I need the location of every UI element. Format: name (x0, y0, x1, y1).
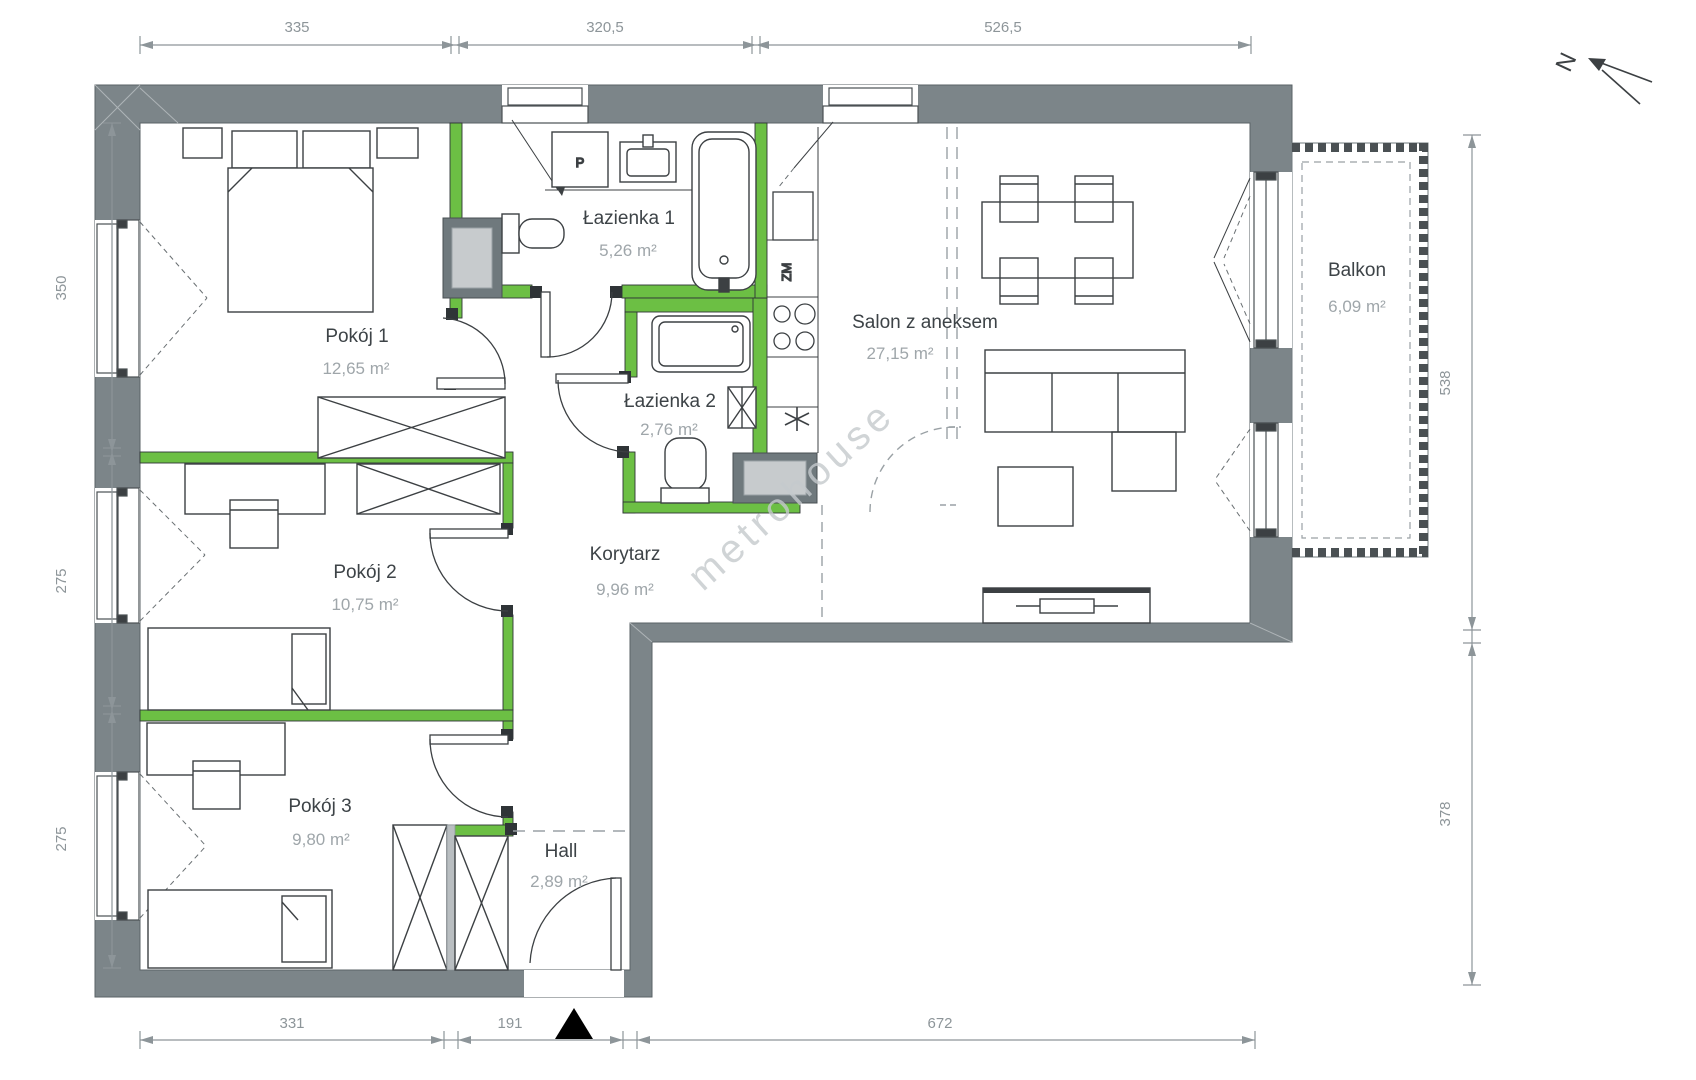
chair-icon (230, 500, 278, 548)
door-pokoj1 (437, 318, 505, 389)
area-label-pokoj3: 9,80 m² (292, 830, 350, 849)
sink-icon (620, 135, 676, 182)
dim-bottom-2: 191 (497, 1015, 522, 1032)
area-label-pokoj1: 12,65 m² (322, 359, 389, 378)
balcony-door-2 (1216, 423, 1278, 537)
dim-top-3: 526,5 (984, 19, 1022, 36)
dim-right-2: 378 (1437, 801, 1454, 826)
balcony (1292, 143, 1428, 557)
nightstand-icon (183, 128, 222, 158)
kitchen-annex: ZM (767, 127, 818, 453)
meter-box-icon (728, 387, 756, 428)
room-label-hall: Hall (545, 841, 578, 862)
door-entrance (530, 878, 621, 970)
floor-plan-page: P ZM Pokój 1 12,65 m² Łazienka 1 (0, 0, 1696, 1080)
furniture-salon (982, 176, 1185, 623)
room-label-pokoj3: Pokój 3 (288, 796, 351, 817)
dim-top-1: 335 (284, 19, 309, 36)
area-label-hall: 2,89 m² (530, 872, 588, 891)
room-label-pokoj1: Pokój 1 (325, 326, 388, 347)
tv-cabinet-icon (983, 588, 1150, 623)
room-label-balkon: Balkon (1328, 260, 1386, 281)
wardrobe-icon (357, 464, 500, 514)
area-label-salon: 27,15 m² (866, 344, 933, 363)
hood-icon (785, 407, 809, 431)
pillow-icon (232, 131, 297, 168)
balcony-door-1 (1214, 172, 1278, 348)
room-label-lazienka1: Łazienka 1 (583, 208, 675, 229)
dim-left-1: 350 (53, 275, 70, 300)
double-bed-icon (228, 168, 373, 312)
room-label-salon: Salon z aneksem (852, 312, 998, 333)
wardrobe-icon (318, 397, 505, 458)
toilet-icon (502, 214, 564, 253)
room-label-pokoj2: Pokój 2 (333, 562, 396, 583)
dim-bottom-1: 331 (279, 1015, 304, 1032)
pillow-icon (292, 634, 326, 704)
fridge-icon (773, 192, 813, 240)
room-label-lazienka2: Łazienka 2 (624, 391, 716, 412)
dining-chair-icon (1000, 176, 1038, 222)
dim-left-3: 275 (53, 826, 70, 851)
pillow-icon (303, 131, 370, 168)
coffee-table-icon (998, 467, 1073, 526)
chair-icon (193, 761, 240, 809)
area-label-korytarz: 9,96 m² (596, 580, 654, 599)
north-arrow-icon: N (1551, 49, 1652, 104)
floor-plan-drawing: P ZM Pokój 1 12,65 m² Łazienka 1 (0, 0, 1696, 1080)
door-pokoj3 (430, 735, 508, 817)
door-lazienka2 (556, 374, 630, 452)
wardrobe-icon (393, 825, 447, 970)
dim-left-2: 275 (53, 568, 70, 593)
bathtub-icon (692, 132, 756, 292)
stove-icon (774, 304, 815, 350)
window-pokoj1 (97, 220, 207, 377)
pillow-icon (282, 896, 326, 962)
dining-chair-icon (1075, 176, 1113, 222)
dining-chair-icon (1075, 258, 1113, 304)
door-pokoj2 (430, 529, 508, 611)
dim-top-2: 320,5 (586, 19, 624, 36)
dining-chair-icon (1000, 258, 1038, 304)
dining-table-icon (982, 202, 1133, 278)
dim-bottom-3: 672 (927, 1015, 952, 1032)
north-label: N (1551, 49, 1583, 76)
wardrobe-icon (455, 836, 508, 970)
washing-machine-label: P (576, 155, 585, 170)
dim-right-1: 538 (1437, 370, 1454, 395)
room-label-korytarz: Korytarz (590, 544, 661, 565)
sofa-icon (985, 350, 1185, 491)
area-label-lazienka2: 2,76 m² (640, 420, 698, 439)
area-label-lazienka1: 5,26 m² (599, 241, 657, 260)
toilet-icon (661, 438, 709, 503)
shower-icon (652, 316, 750, 372)
door-lazienka1 (541, 292, 612, 357)
entrance-marker-icon (555, 1008, 593, 1039)
furniture-pokoj2 (148, 464, 500, 710)
area-label-balkon: 6,09 m² (1328, 297, 1386, 316)
dishwasher-label: ZM (779, 263, 794, 282)
area-label-pokoj2: 10,75 m² (331, 595, 398, 614)
nightstand-icon (377, 128, 418, 158)
